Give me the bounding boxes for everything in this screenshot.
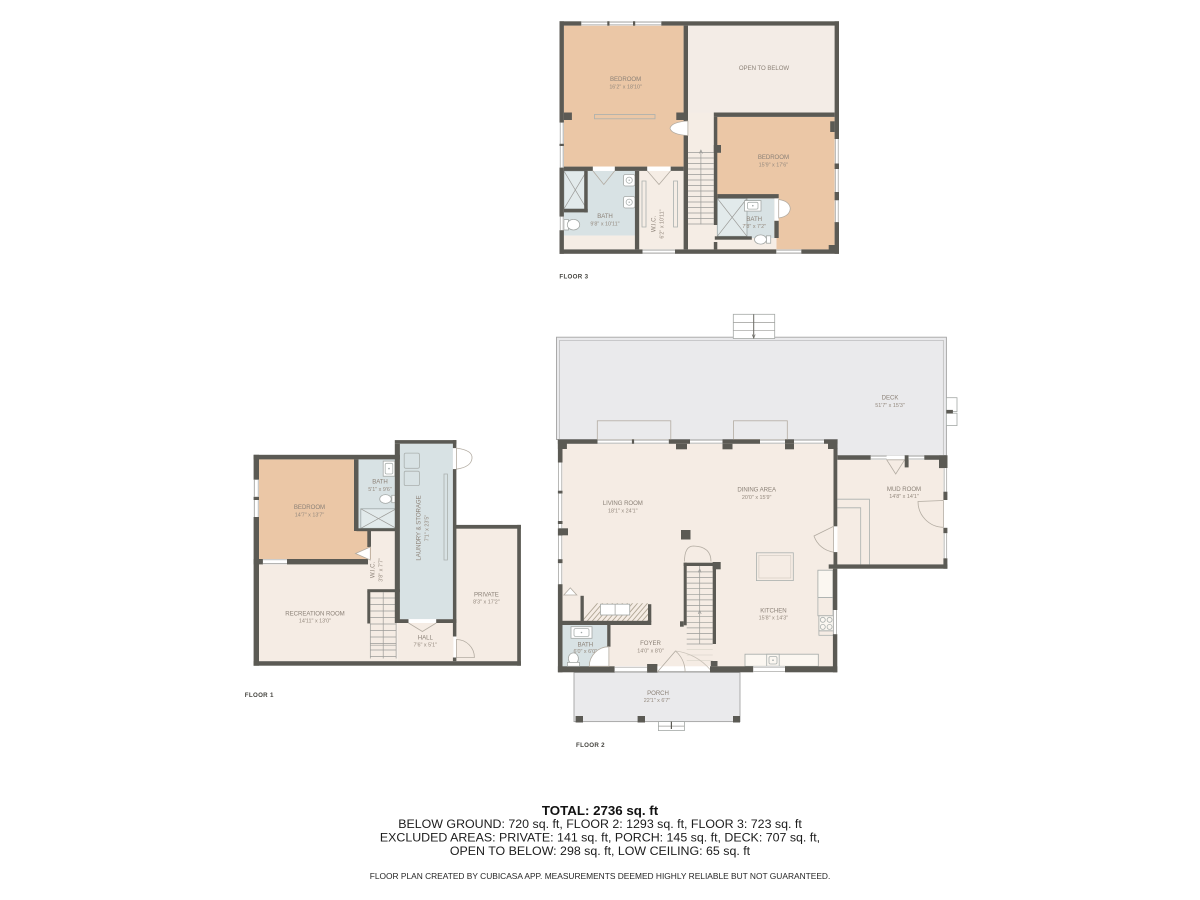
svg-text:DECK: DECK xyxy=(882,395,899,402)
svg-text:DINING AREA: DINING AREA xyxy=(737,487,777,494)
svg-text:PORCH: PORCH xyxy=(647,690,669,697)
svg-text:7'1" x 23'5": 7'1" x 23'5" xyxy=(425,515,431,542)
svg-text:51'7" x 15'3": 51'7" x 15'3" xyxy=(875,403,905,409)
svg-text:LIVING ROOM: LIVING ROOM xyxy=(603,500,643,507)
svg-text:PRIVATE: PRIVATE xyxy=(474,592,499,599)
svg-text:OPEN TO BELOW: 298 sq. ft, LOW: OPEN TO BELOW: 298 sq. ft, LOW CEILING: … xyxy=(450,844,751,858)
svg-text:FLOOR 2: FLOOR 2 xyxy=(576,742,605,749)
svg-text:3'8" x 7'7": 3'8" x 7'7" xyxy=(379,558,385,582)
svg-text:22'1" x 6'7": 22'1" x 6'7" xyxy=(644,698,671,704)
svg-text:FLOOR 3: FLOOR 3 xyxy=(559,274,588,281)
svg-text:14'0" x 8'0": 14'0" x 8'0" xyxy=(637,649,664,655)
svg-text:18'1" x 24'1": 18'1" x 24'1" xyxy=(608,509,638,515)
svg-text:6'0" x 6'0": 6'0" x 6'0" xyxy=(574,649,598,655)
svg-text:20'0" x 15'9": 20'0" x 15'9" xyxy=(742,495,772,501)
svg-text:EXCLUDED AREAS: PRIVATE: 141 s: EXCLUDED AREAS: PRIVATE: 141 sq. ft, POR… xyxy=(380,831,820,845)
svg-text:BEDROOM: BEDROOM xyxy=(294,504,325,511)
svg-text:15'8" x 14'3": 15'8" x 14'3" xyxy=(759,616,789,622)
svg-text:BATH: BATH xyxy=(372,479,388,486)
svg-text:7'6" x 5'1": 7'6" x 5'1" xyxy=(414,643,438,649)
svg-text:9'8" x 10'11": 9'8" x 10'11" xyxy=(590,222,619,228)
svg-text:5'1" x 9'6": 5'1" x 9'6" xyxy=(368,487,392,493)
svg-text:W.I.C.: W.I.C. xyxy=(370,562,377,579)
svg-text:BEDROOM: BEDROOM xyxy=(610,76,641,83)
svg-text:14'8" x 14'1": 14'8" x 14'1" xyxy=(889,494,919,500)
svg-text:15'9" x 17'6": 15'9" x 17'6" xyxy=(759,163,789,169)
svg-text:BATH: BATH xyxy=(746,216,762,223)
svg-text:FLOOR PLAN CREATED BY CUBICASA: FLOOR PLAN CREATED BY CUBICASA APP. MEAS… xyxy=(370,871,831,881)
svg-text:RECREATION ROOM: RECREATION ROOM xyxy=(285,610,344,617)
svg-text:8'3" x 17'2": 8'3" x 17'2" xyxy=(473,600,500,606)
svg-text:OPEN TO BELOW: OPEN TO BELOW xyxy=(739,65,790,72)
svg-text:6'2" x 10'11": 6'2" x 10'11" xyxy=(660,209,666,238)
svg-text:7'8" x 7'2": 7'8" x 7'2" xyxy=(742,224,766,230)
svg-text:14'7" x 13'7": 14'7" x 13'7" xyxy=(295,513,325,519)
svg-text:BATH: BATH xyxy=(597,213,613,220)
svg-text:TOTAL: 2736 sq. ft: TOTAL: 2736 sq. ft xyxy=(542,803,659,818)
svg-text:MUD ROOM: MUD ROOM xyxy=(887,486,921,493)
svg-text:BATH: BATH xyxy=(577,641,593,648)
svg-text:HALL: HALL xyxy=(418,634,434,641)
svg-text:LAUNDRY & STORAGE: LAUNDRY & STORAGE xyxy=(416,495,423,560)
svg-text:BEDROOM: BEDROOM xyxy=(758,154,789,161)
svg-text:FLOOR 1: FLOOR 1 xyxy=(245,692,274,699)
svg-text:14'11" x 13'0": 14'11" x 13'0" xyxy=(299,619,331,625)
svg-text:KITCHEN: KITCHEN xyxy=(760,607,786,614)
svg-text:W.I.C.: W.I.C. xyxy=(651,216,658,233)
svg-text:BELOW GROUND: 720 sq. ft, FLOO: BELOW GROUND: 720 sq. ft, FLOOR 2: 1293 … xyxy=(398,817,802,831)
svg-text:16'2" x 18'10": 16'2" x 18'10" xyxy=(609,85,642,91)
svg-text:FOYER: FOYER xyxy=(640,640,661,647)
